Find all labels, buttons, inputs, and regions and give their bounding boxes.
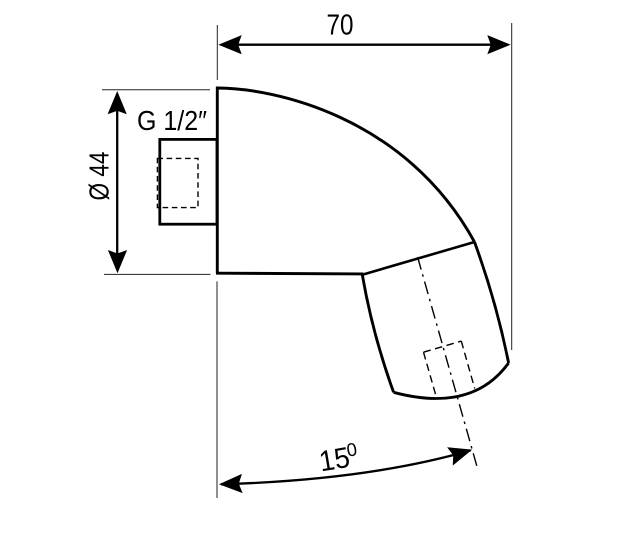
svg-text:G 1/2″: G 1/2″: [137, 105, 207, 136]
svg-text:0: 0: [345, 438, 359, 460]
svg-text:Ø 44: Ø 44: [84, 152, 115, 201]
svg-text:70: 70: [327, 10, 354, 42]
